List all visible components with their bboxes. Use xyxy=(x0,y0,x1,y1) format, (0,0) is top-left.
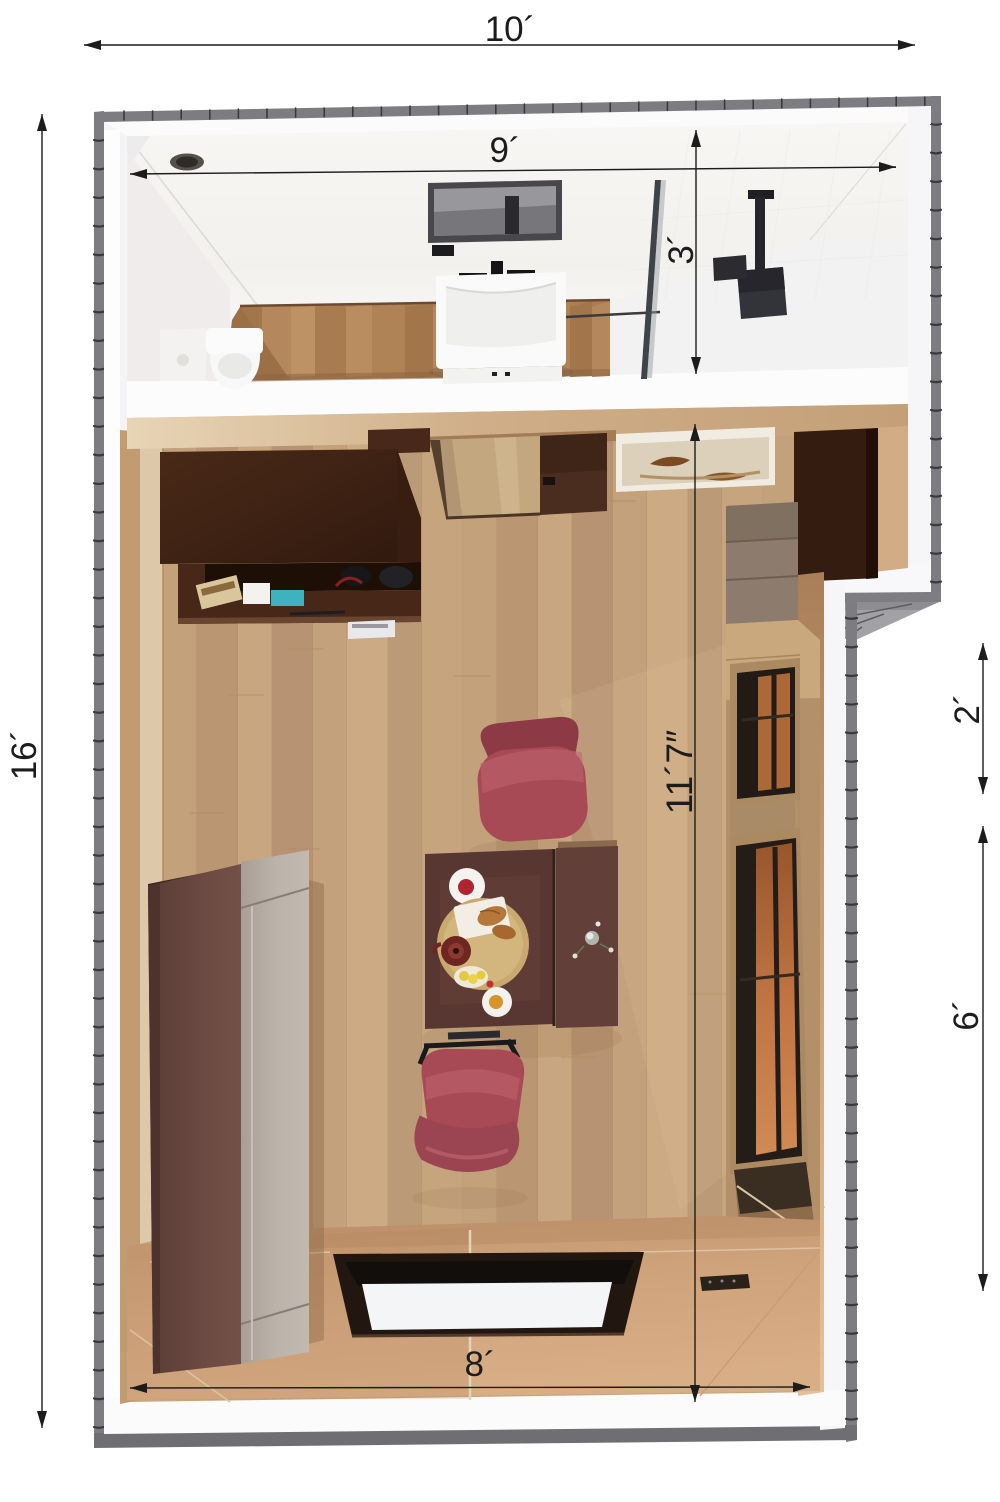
svg-text:6´: 6´ xyxy=(947,999,986,1030)
svg-text:9´: 9´ xyxy=(489,131,520,170)
svg-text:8´: 8´ xyxy=(464,1345,495,1384)
svg-text:3´: 3´ xyxy=(662,233,701,264)
svg-text:11´7″: 11´7″ xyxy=(659,730,700,814)
svg-text:2´: 2´ xyxy=(948,693,987,724)
svg-text:16´: 16´ xyxy=(5,730,44,781)
svg-text:10´: 10´ xyxy=(485,10,536,49)
